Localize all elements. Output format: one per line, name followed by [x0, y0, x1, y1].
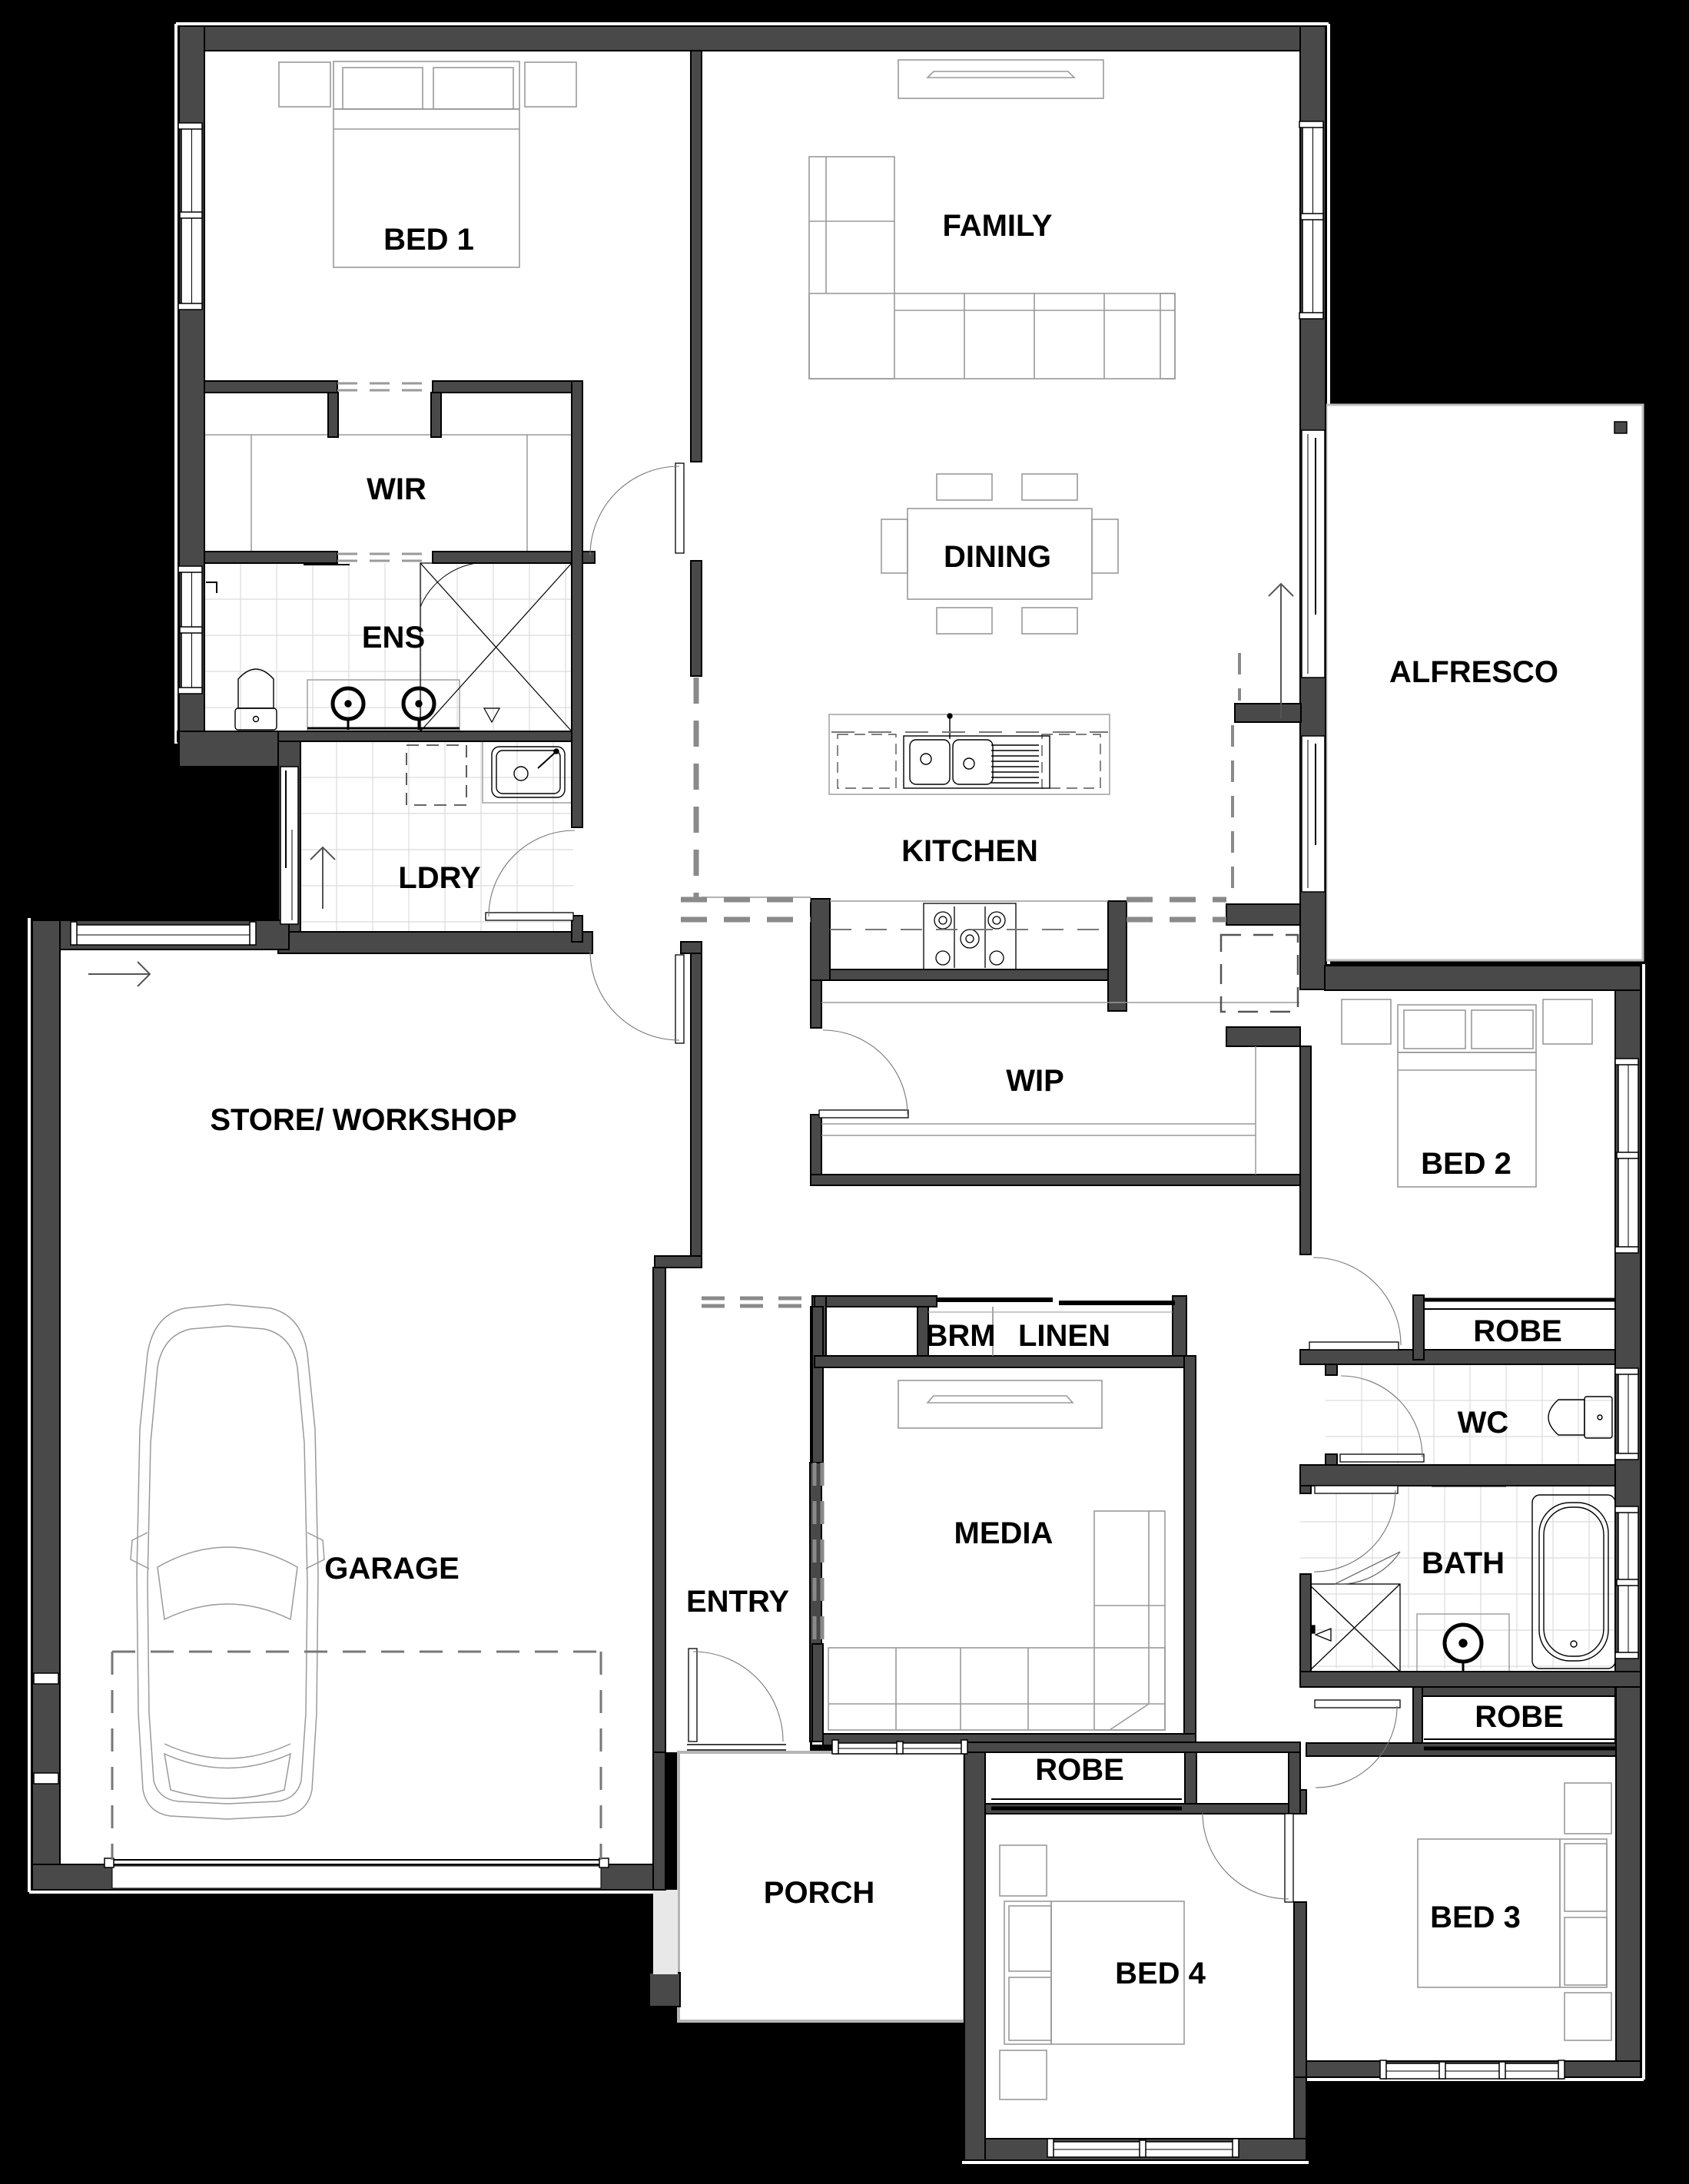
- svg-text:ROBE: ROBE: [1473, 1314, 1562, 1348]
- svg-text:DINING: DINING: [944, 540, 1051, 574]
- svg-text:ENS: ENS: [362, 621, 425, 655]
- svg-text:ENTRY: ENTRY: [686, 1585, 789, 1619]
- svg-text:PORCH: PORCH: [764, 1876, 874, 1910]
- svg-text:STORE/ WORKSHOP: STORE/ WORKSHOP: [210, 1103, 516, 1137]
- svg-text:GARAGE: GARAGE: [324, 1552, 460, 1586]
- svg-text:ROBE: ROBE: [1035, 1753, 1124, 1787]
- svg-text:WIP: WIP: [1006, 1064, 1064, 1098]
- svg-text:LDRY: LDRY: [398, 861, 481, 895]
- svg-text:LINEN: LINEN: [1018, 1319, 1110, 1353]
- svg-text:BATH: BATH: [1422, 1546, 1505, 1580]
- svg-text:ROBE: ROBE: [1475, 1700, 1564, 1734]
- svg-text:BED 3: BED 3: [1430, 1901, 1521, 1934]
- svg-text:ALFRESCO: ALFRESCO: [1389, 655, 1558, 689]
- svg-text:BRM: BRM: [925, 1319, 995, 1353]
- svg-text:WC: WC: [1458, 1406, 1509, 1440]
- svg-text:WIR: WIR: [367, 472, 426, 506]
- svg-text:BED 2: BED 2: [1421, 1147, 1511, 1181]
- svg-text:FAMILY: FAMILY: [943, 209, 1053, 243]
- svg-text:KITCHEN: KITCHEN: [901, 834, 1038, 868]
- svg-text:BED 1: BED 1: [383, 223, 474, 257]
- svg-text:BED 4: BED 4: [1115, 1957, 1206, 1990]
- svg-text:MEDIA: MEDIA: [954, 1516, 1054, 1550]
